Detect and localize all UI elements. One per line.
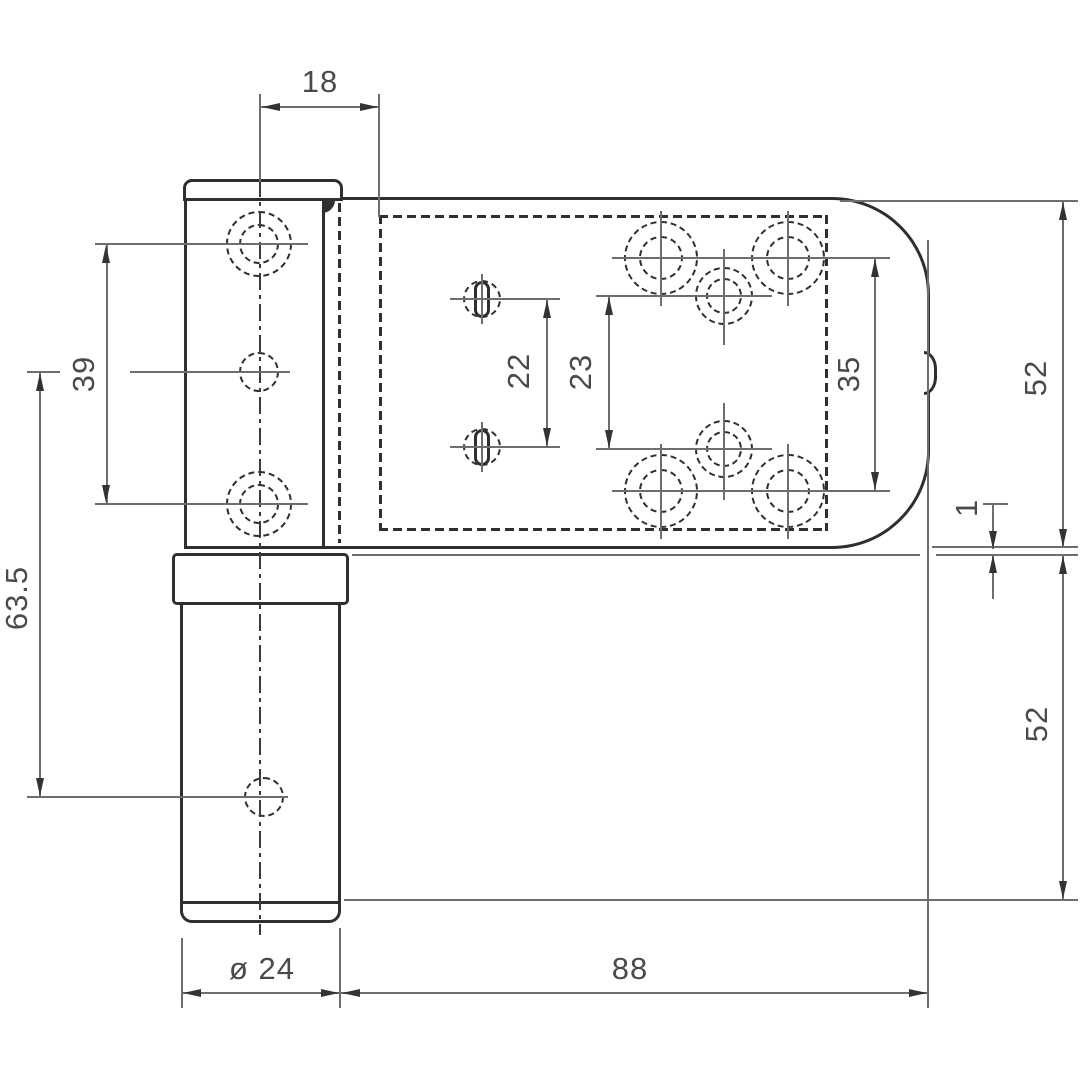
- crosshair-line: [660, 211, 662, 306]
- crosshair-line: [596, 295, 772, 297]
- dim-dia24-line: [182, 992, 340, 994]
- arrowhead: [909, 989, 927, 997]
- dim-35-label: 35: [831, 356, 867, 392]
- technical-drawing-canvas: 18 39 63.5 22 23 35 52 1 52 ø 24 88: [0, 0, 1080, 1080]
- crosshair-line: [612, 257, 890, 259]
- arrowhead: [36, 778, 44, 796]
- arrowhead: [871, 472, 879, 490]
- dim-52-top-label: 52: [1018, 360, 1054, 396]
- arrowhead: [605, 430, 613, 448]
- arrowhead: [543, 428, 551, 446]
- arrowhead: [1059, 202, 1067, 220]
- extension-line: [181, 938, 183, 1008]
- crosshair-line: [660, 444, 662, 539]
- crosshair-line: [481, 422, 483, 472]
- dim-52-bottom-line: [1062, 556, 1064, 900]
- dim-dia24-label: ø 24: [229, 951, 295, 987]
- dim-22-label: 22: [501, 353, 537, 389]
- dim-1-label: 1: [949, 499, 985, 517]
- crosshair-line: [450, 446, 560, 448]
- arrowhead: [102, 485, 110, 503]
- locating-pin-bump: [924, 351, 937, 395]
- dim-88-line: [340, 992, 928, 994]
- extension-line: [840, 200, 1078, 202]
- extension-line: [932, 546, 1078, 548]
- frame-gap-line: [936, 554, 1078, 556]
- dim-35-line: [874, 258, 876, 491]
- hidden-edge-line: [338, 203, 341, 543]
- plate-recess-outline-top: [379, 215, 828, 218]
- arrowhead: [183, 989, 201, 997]
- extension-line: [339, 928, 341, 1008]
- crosshair-line: [27, 796, 288, 798]
- arrowhead: [1059, 529, 1067, 547]
- frame-gap-line: [352, 554, 920, 556]
- arrowhead: [605, 297, 613, 315]
- dim-22-line: [546, 299, 548, 447]
- arrowhead: [871, 259, 879, 277]
- arrowhead: [262, 103, 280, 111]
- crosshair-line: [130, 371, 290, 373]
- extension-line: [927, 240, 929, 1008]
- arrowhead: [1059, 556, 1067, 574]
- dim-52-top-line: [1062, 202, 1064, 548]
- plate-recess-outline-left: [379, 215, 382, 531]
- crosshair-line: [95, 503, 308, 505]
- crosshair-line: [95, 243, 308, 245]
- dim-52-bottom-label: 52: [1019, 706, 1055, 742]
- extension-tick: [983, 503, 1008, 505]
- crosshair-line: [723, 403, 725, 500]
- plate-recess-outline-right: [825, 215, 828, 531]
- arrowhead: [1059, 881, 1067, 899]
- arrowhead: [321, 989, 339, 997]
- extension-line: [378, 94, 380, 217]
- crosshair-line: [787, 211, 789, 306]
- reference-line: [344, 899, 1078, 901]
- dim-23-line: [608, 296, 610, 449]
- arrowhead: [360, 103, 378, 111]
- dim-39-label: 39: [66, 356, 102, 392]
- arrowhead: [543, 300, 551, 318]
- dim-23-label: 23: [563, 354, 599, 390]
- pin-centerline: [259, 180, 261, 935]
- plate-recess-outline-bottom: [379, 528, 828, 531]
- dim-88-label: 88: [612, 951, 648, 987]
- crosshair-line: [787, 444, 789, 539]
- arrowhead: [36, 373, 44, 391]
- arrowhead: [989, 531, 997, 549]
- crosshair-line: [723, 249, 725, 345]
- dim-63-5-label: 63.5: [0, 566, 35, 630]
- extension-line: [259, 94, 261, 182]
- hinge-leaf-top-cap: [183, 179, 343, 201]
- arrowhead: [342, 989, 360, 997]
- dim-63-5-line: [39, 372, 41, 798]
- crosshair-line: [612, 490, 890, 492]
- arrowhead: [989, 555, 997, 573]
- crosshair-line: [481, 274, 483, 324]
- dim-39-line: [106, 244, 108, 505]
- crosshair-line: [596, 448, 772, 450]
- dim-18-label: 18: [302, 64, 338, 100]
- arrowhead: [102, 245, 110, 263]
